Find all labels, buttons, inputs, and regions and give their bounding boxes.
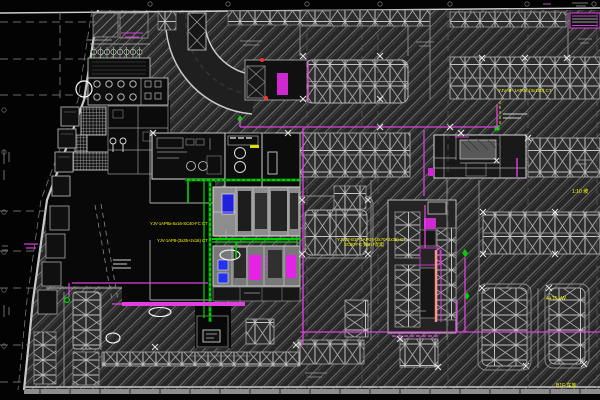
svg-text:1:10 坡: 1:10 坡: [572, 188, 588, 195]
svg-text:4+15 kW: 4+15 kW: [546, 296, 566, 302]
svg-text:YJV-1AP8-(3x35+2x16) CT: YJV-1AP8-(3x35+2x16) CT: [157, 238, 208, 243]
svg-text:SC80-FC 到B1F配电: SC80-FC 到B1F配电: [344, 241, 385, 248]
svg-text:YJV 4F 1AP04-(3x150) CT: YJV 4F 1AP04-(3x150) CT: [498, 88, 552, 93]
svg-text:YJV-1AP8a-5x16-SC40-FC CT: YJV-1AP8a-5x16-SC40-FC CT: [150, 221, 208, 226]
svg-text:B1F 车库: B1F 车库: [556, 382, 577, 389]
